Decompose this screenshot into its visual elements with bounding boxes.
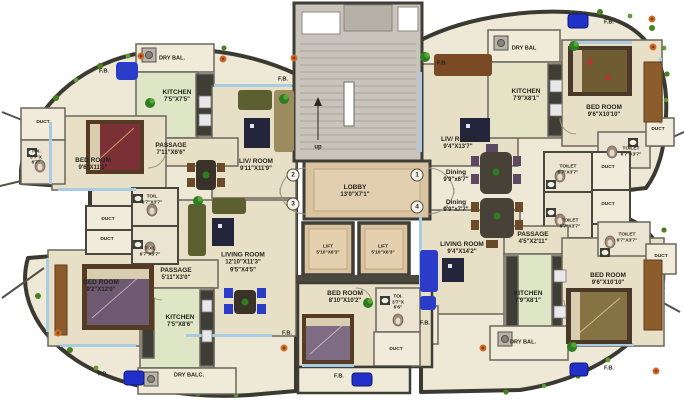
fb-label-unit3: F.B. — [98, 372, 108, 379]
toilet-label-unit1: TOILET6'7"X3'7" — [621, 146, 642, 157]
duct-label-cluster-right-1: DUCT — [601, 165, 614, 171]
kitchen-label-unit4: KITCHEN7'9"X8'1" — [514, 290, 543, 306]
unit-number-4: 4 — [411, 201, 424, 214]
bed-icon — [566, 288, 632, 344]
duct-label-cluster-right-2: DUCT — [601, 202, 614, 208]
drybalc-label-unit3: DRY BALC. — [174, 373, 204, 380]
fb-label-unit3-right: F.B. — [282, 331, 292, 338]
duct-label-unit1: DUCT — [651, 127, 664, 133]
floor-plan: F.B. DRY BAL. KITCHEN7'5"X7'5" PASSAGE7'… — [0, 0, 684, 400]
toilet-label-unit4: TOILET6'7"X3'7" — [617, 232, 638, 243]
living-label-unit4: LIVING ROOM9'4"X14'2" — [440, 241, 484, 257]
up-label: up — [314, 144, 321, 152]
kitchen-label-unit3: KITCHEN7'5"X8'6" — [166, 314, 195, 330]
toilet-label-unit2: TOI.3'7"X6'7" — [30, 150, 42, 167]
unit-number-1: 1 — [411, 169, 424, 182]
unit-number-3: 3 — [287, 198, 300, 211]
fb-label-stair-left: F.B. — [278, 77, 288, 84]
bed-icon — [302, 314, 354, 364]
fb-label-unit2: F.B. — [99, 69, 109, 76]
duct-label-center-south: DUCT — [389, 347, 402, 353]
toilet-label-cluster-left-1: TOIL6'7"X3'7" — [142, 194, 163, 205]
lobby-label: LOBBY13'0"X7'1" — [340, 184, 369, 200]
fb-label-unit4-left: F.B. — [420, 321, 430, 328]
toilet-label-cluster-right-1: TOILET6'7"X3'7" — [558, 164, 579, 175]
lift-1-label: LIFT5'10"X6'3" — [316, 244, 339, 255]
drybal-label-unit1: DRY BAL — [512, 46, 537, 53]
bedroom2-label-unit3: BED ROOM8'10"X10'2" — [327, 290, 363, 306]
drybal-label-unit4: DRY BAL. — [510, 340, 536, 347]
duct-label-left: DUCT — [36, 120, 49, 126]
duct-label-cluster-left-1: DUCT — [101, 217, 114, 223]
bedroom-label-unit1: BED ROOM9'6"X10'10" — [586, 104, 622, 120]
toilet2-label-unit3: TOI.3'7"X6'6" — [392, 295, 404, 312]
dining-label-unit1: Dining9'9"x6'7" — [443, 169, 468, 185]
bedroom-label-unit2: BED ROOM9'6"X11'5" — [75, 157, 111, 173]
toilet-label-cluster-right-2: TOILET6'7"X3'7" — [560, 218, 581, 229]
toilet-label-cluster-left-2: TOIL6'7"X3'7" — [140, 246, 161, 257]
drybal-label-unit2: DRY BAL. — [159, 56, 185, 63]
bedroom-label-unit3: BED ROOM9'2"X12'0" — [83, 279, 119, 295]
living-label-unit3: LIVING ROOM12'10"X11'3"9'5"X4'5" — [221, 251, 265, 274]
floorplan-drawing — [0, 0, 684, 400]
kitchen-label-unit2: KITCHEN7'5"X7'5" — [163, 89, 192, 105]
dining-label-unit4: Dining9'9"x7'7" — [443, 199, 468, 215]
lift-2-label: LIFT5'10"X6'3" — [371, 244, 394, 255]
fb-label-unit1: F.B. — [604, 20, 614, 27]
living-label-unit1: LIV/ ROOM9'4"X13'7" — [441, 136, 475, 152]
passage-label-unit2: PASSAGE7'11"X6'6" — [155, 142, 186, 158]
kitchen-label-unit1: KITCHEN7'9"X8'1" — [512, 88, 541, 104]
bed-icon — [82, 264, 154, 330]
passage-label-unit3: PASSAGE5'11"X3'0" — [160, 267, 191, 283]
fb-label-center-south: F.B. — [334, 374, 344, 381]
fb-label-unit1-left: F.B. — [437, 61, 447, 68]
bedroom-label-unit4: BED ROOM9'6"X10'10" — [590, 272, 626, 288]
bed-icon — [568, 46, 632, 96]
duct-label-unit4: DUCT — [654, 254, 667, 260]
fb-label-unit4: F.B. — [604, 366, 614, 373]
unit-number-2: 2 — [287, 169, 300, 182]
passage-label-unit4: PASSAGE4'5"X2'11" — [517, 231, 548, 247]
living-label-unit2: LIV/ ROOM9'11"X11'9" — [239, 158, 273, 174]
duct-label-cluster-left-2: DUCT — [100, 237, 113, 243]
